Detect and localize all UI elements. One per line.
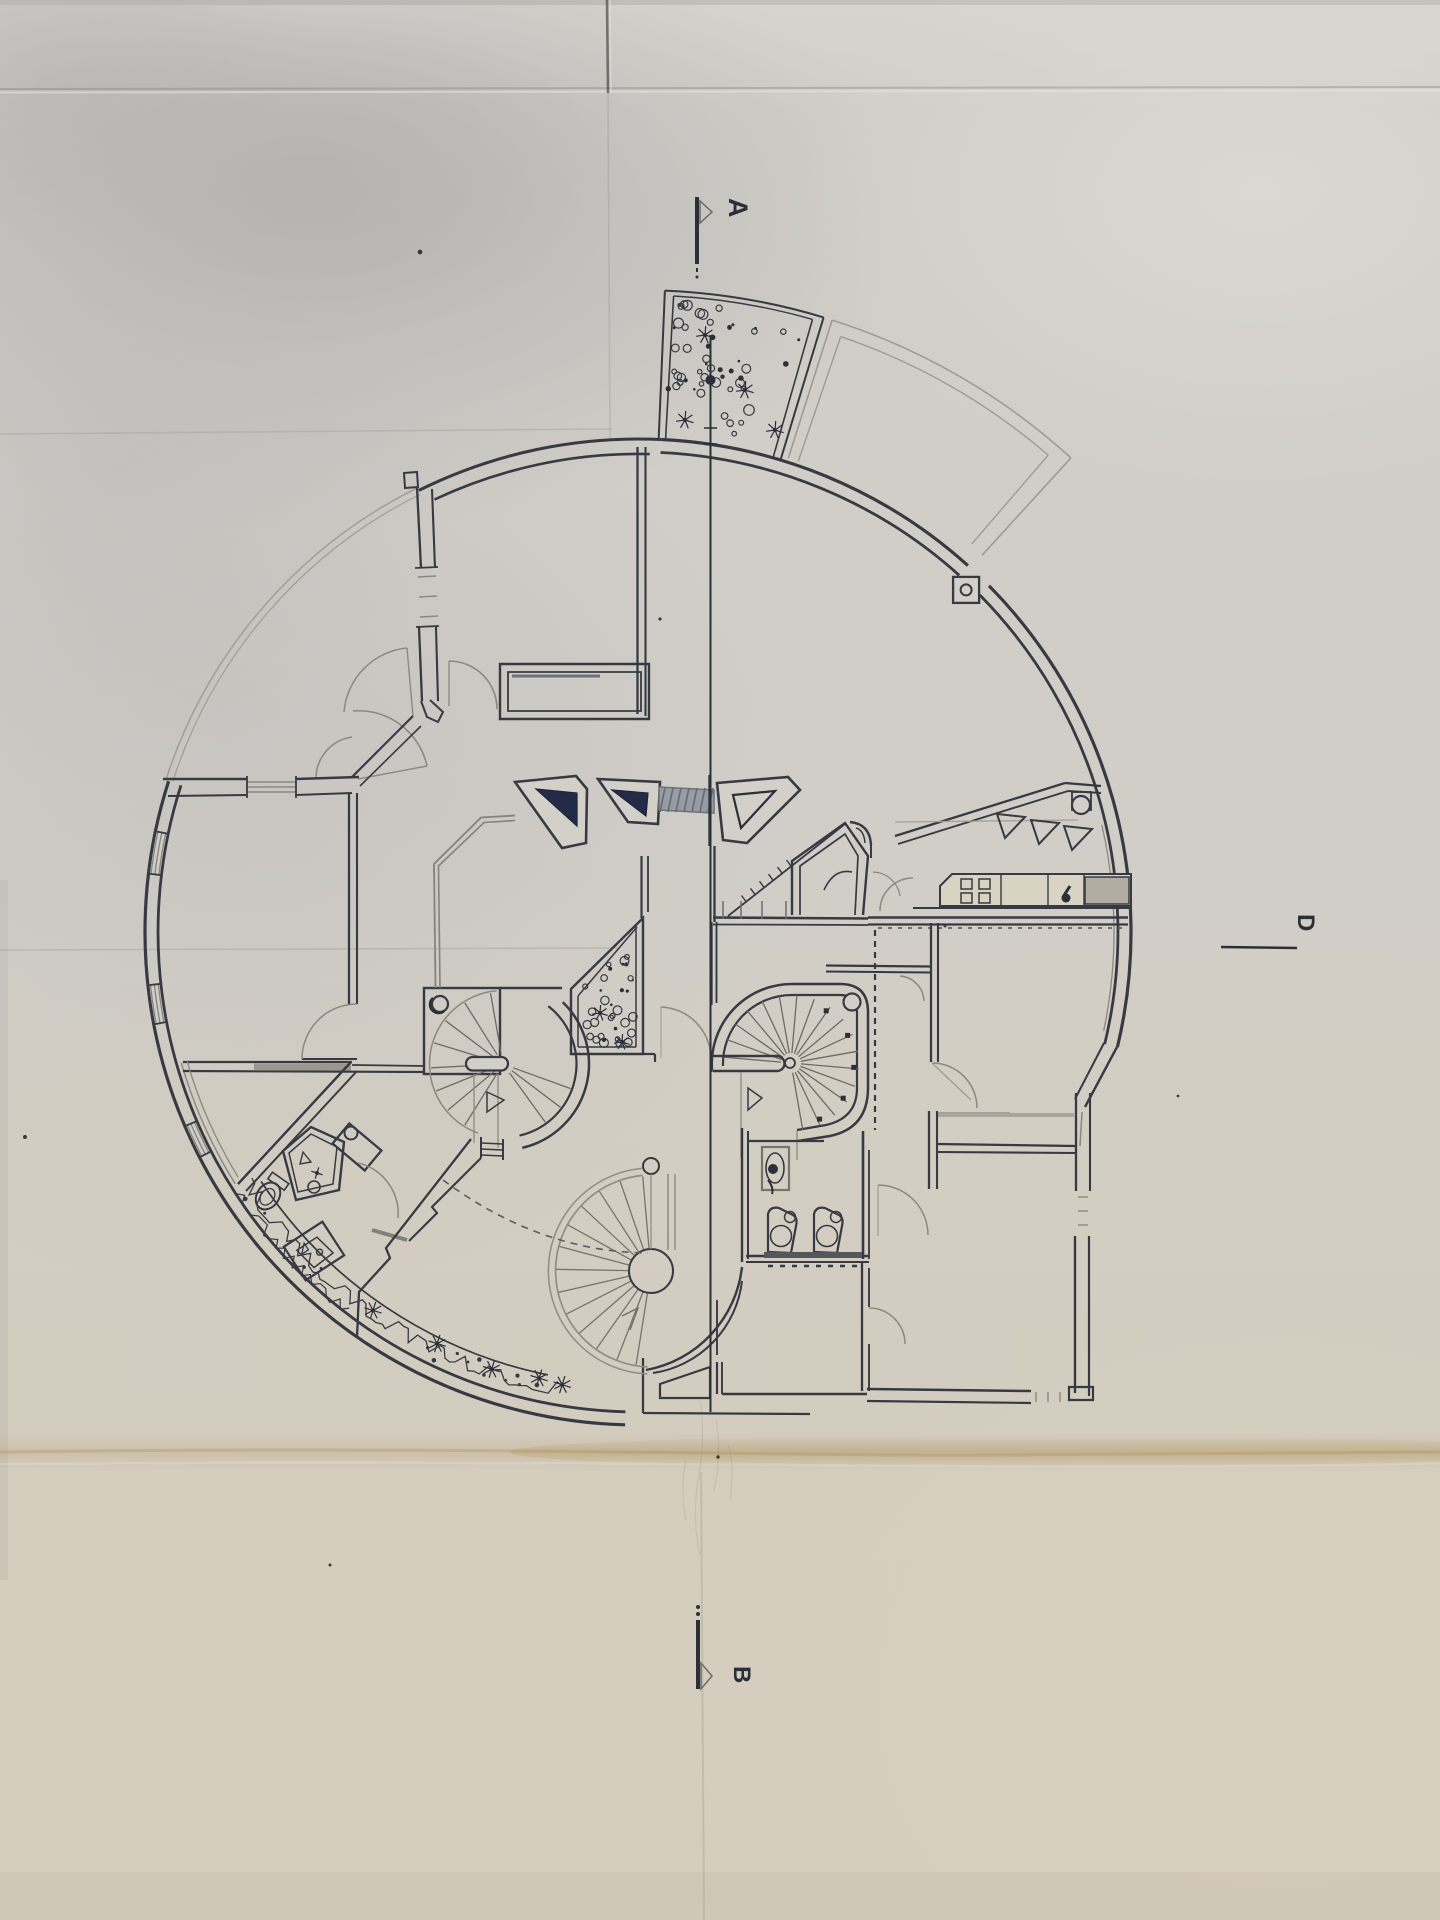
svg-text:D: D	[1292, 914, 1319, 931]
svg-text:A: A	[723, 198, 753, 218]
svg-text:B: B	[728, 1666, 755, 1683]
